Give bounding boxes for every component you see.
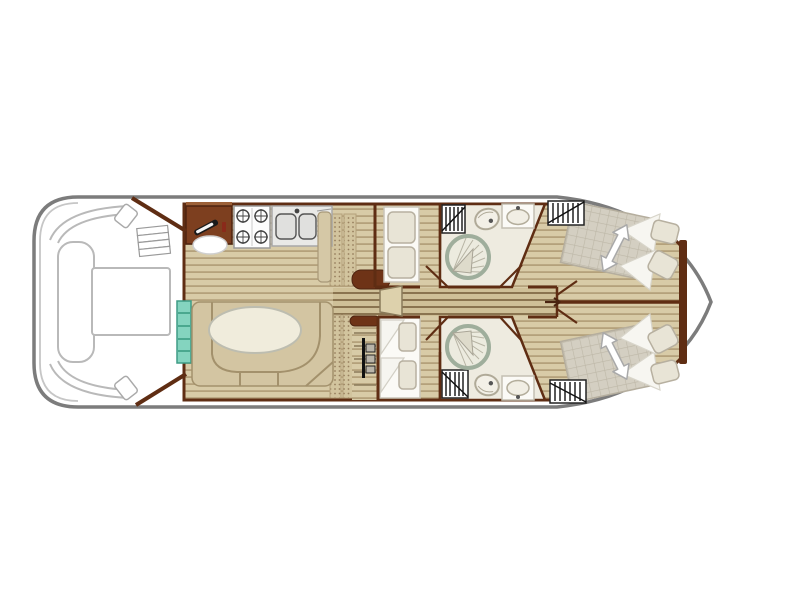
shelf-box-1 [366, 344, 375, 352]
floor-plan-svg [0, 0, 800, 601]
sink-bowl-right [299, 214, 316, 239]
wardrobe-mid-port [442, 205, 465, 233]
bow-bulkhead [679, 240, 687, 364]
counter-end [318, 212, 331, 282]
washbasin-port-bowl [507, 210, 529, 225]
pillow-port-2 [388, 247, 415, 278]
wardrobe-mid-starboard [442, 370, 468, 398]
shelf-rail [362, 338, 365, 378]
salon [192, 302, 333, 386]
shelf-box-2 [366, 355, 375, 363]
sink-bowl-left [276, 214, 296, 239]
wardrobe-bow-port [548, 201, 584, 225]
oval-table [209, 307, 301, 353]
pillow-starboard-2 [399, 361, 416, 389]
pillow-starboard-1 [399, 323, 416, 351]
teal-stairs [177, 301, 191, 363]
entry-arch [193, 236, 227, 254]
washbasin-starboard-bowl [507, 381, 529, 396]
washbasin-starboard-faucet [516, 395, 520, 399]
pillow-port-1 [388, 212, 415, 243]
side-bench [58, 242, 94, 362]
corridor-floor [333, 288, 557, 316]
shelf-cap-wall [350, 316, 380, 326]
wardrobe-bow-starboard [550, 380, 586, 403]
corridor-sliding-door [380, 286, 402, 316]
shelf-box-3 [366, 366, 375, 373]
gas-hob [234, 206, 270, 248]
washbasin-starboard [502, 376, 534, 400]
deck-table [92, 268, 170, 335]
boat-floor-plan [0, 0, 800, 601]
washbasin-port [502, 204, 534, 228]
boarding-steps [137, 225, 171, 256]
shower-port [447, 236, 489, 278]
shower-starboard [447, 326, 489, 368]
knife-block [222, 222, 226, 232]
washbasin-port-faucet [516, 206, 520, 210]
wardrobe-mid-port-bars [442, 207, 465, 231]
faucet-dot [295, 209, 300, 214]
